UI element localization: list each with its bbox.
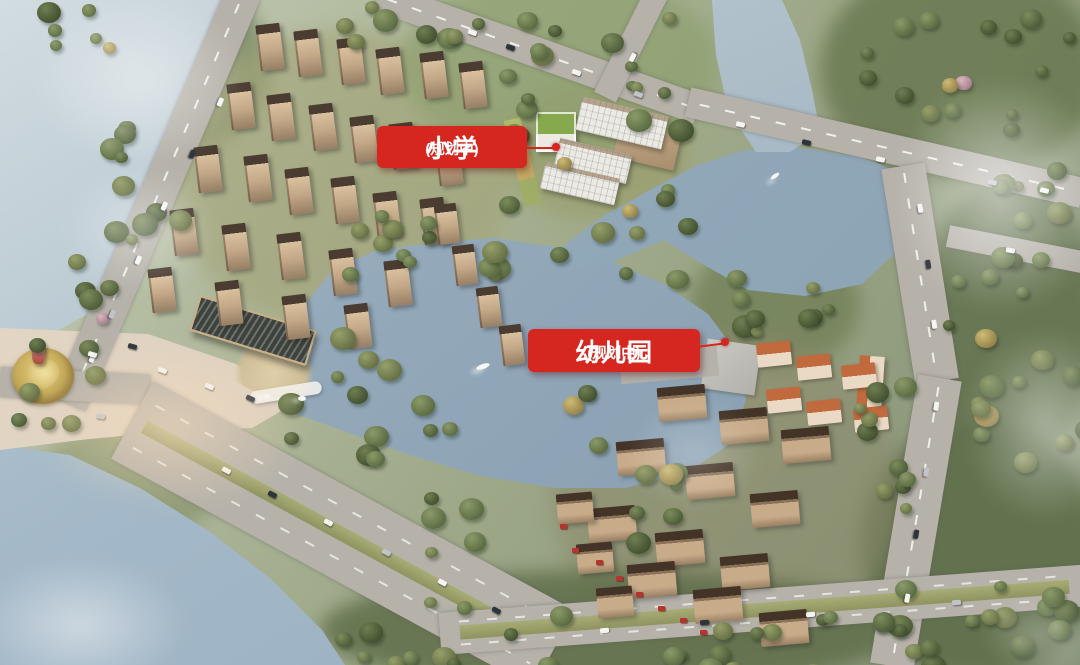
school-label: 小学 (规划中) bbox=[377, 126, 527, 168]
sunlight-glow bbox=[0, 310, 360, 540]
cloud-haze bbox=[960, 580, 1080, 665]
kindergarten-pointer-dot bbox=[721, 338, 729, 346]
kindergarten-label: 幼儿园 (规划中) bbox=[528, 329, 700, 372]
school-label-status: (规划中) bbox=[425, 138, 478, 159]
cloud-haze bbox=[30, 140, 250, 320]
kindergarten-label-status: (规划中) bbox=[587, 342, 640, 363]
aerial-rendering: 小学 (规划中) 幼儿园 (规划中) bbox=[0, 0, 1080, 665]
cloud-haze bbox=[600, 380, 790, 530]
cloud-haze bbox=[0, 530, 230, 665]
school-pointer-dot bbox=[552, 143, 560, 151]
